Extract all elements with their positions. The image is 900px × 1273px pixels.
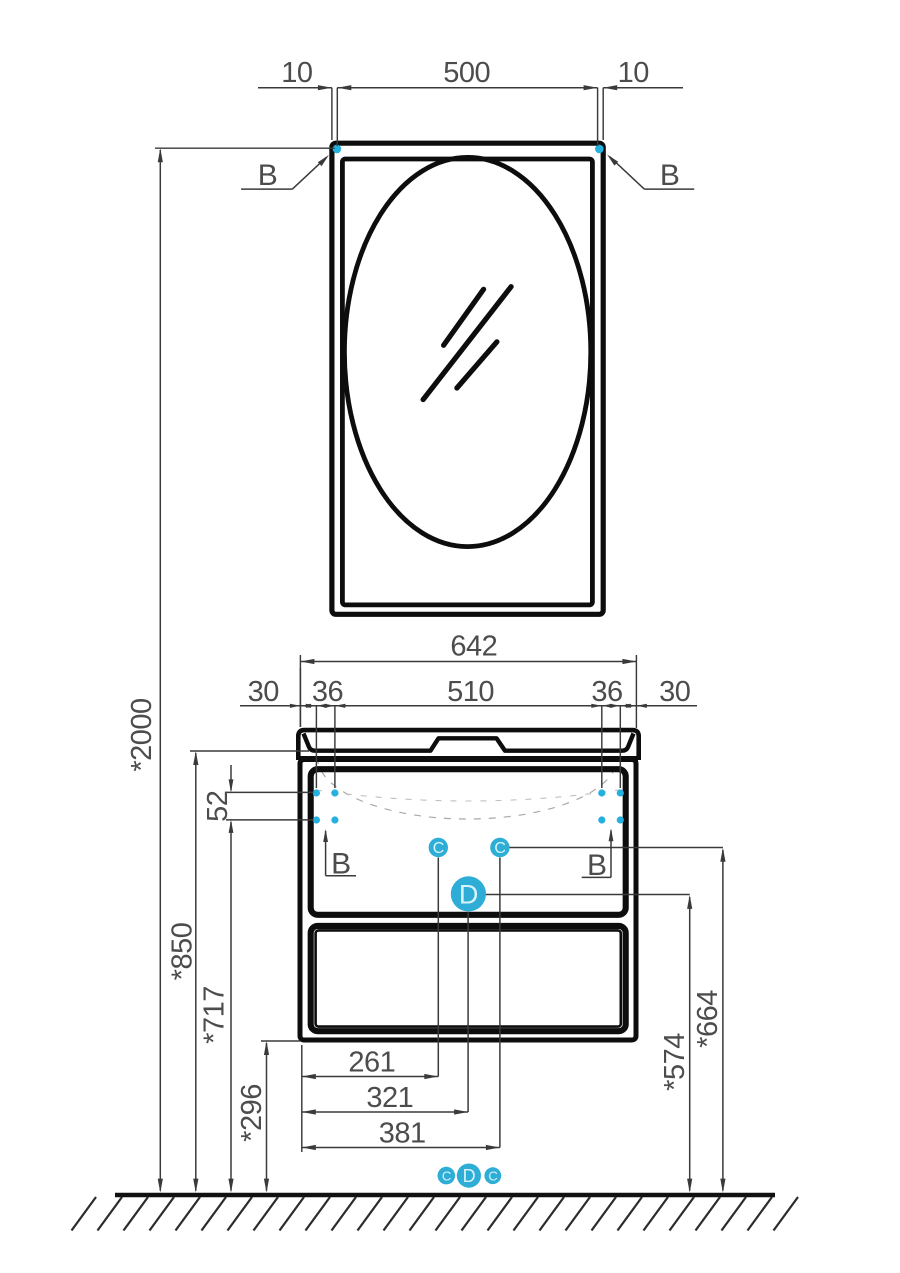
svg-text:B: B — [660, 159, 680, 192]
svg-text:30: 30 — [248, 676, 279, 708]
svg-text:*850: *850 — [167, 923, 199, 981]
svg-text:B: B — [258, 159, 278, 192]
svg-text:36: 36 — [591, 676, 622, 708]
svg-text:30: 30 — [659, 676, 690, 708]
svg-text:10: 10 — [281, 57, 312, 89]
svg-text:*296: *296 — [236, 1084, 268, 1142]
svg-text:*2000: *2000 — [126, 698, 158, 771]
svg-text:321: 321 — [366, 1082, 413, 1114]
svg-text:642: 642 — [450, 631, 497, 663]
svg-text:*717: *717 — [198, 986, 230, 1044]
svg-text:C: C — [494, 840, 505, 857]
svg-text:C: C — [488, 1168, 497, 1183]
svg-text:510: 510 — [447, 676, 494, 708]
svg-text:D: D — [463, 1166, 476, 1186]
svg-text:36: 36 — [312, 676, 343, 708]
svg-text:C: C — [433, 840, 444, 857]
svg-text:C: C — [442, 1168, 451, 1183]
svg-text:52: 52 — [202, 791, 234, 822]
svg-text:261: 261 — [348, 1047, 395, 1079]
svg-text:*664: *664 — [692, 990, 724, 1048]
svg-text:10: 10 — [618, 57, 649, 89]
svg-text:D: D — [459, 880, 478, 910]
svg-text:B: B — [331, 848, 351, 881]
svg-text:B: B — [587, 849, 607, 882]
svg-text:*574: *574 — [659, 1033, 691, 1091]
svg-text:381: 381 — [379, 1118, 426, 1150]
svg-text:500: 500 — [443, 57, 490, 89]
